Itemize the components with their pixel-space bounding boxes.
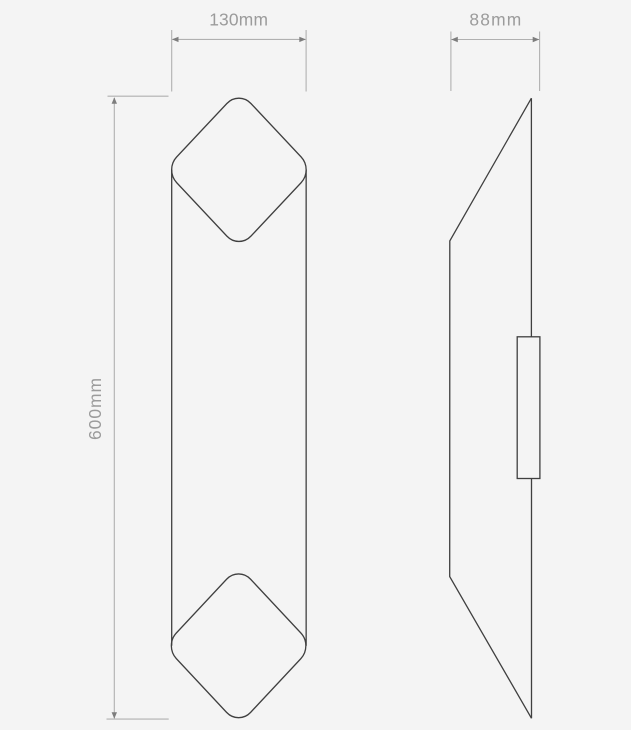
svg-text:88mm: 88mm [469,9,522,29]
svg-text:600mm: 600mm [85,377,105,440]
svg-text:130mm: 130mm [209,9,268,29]
